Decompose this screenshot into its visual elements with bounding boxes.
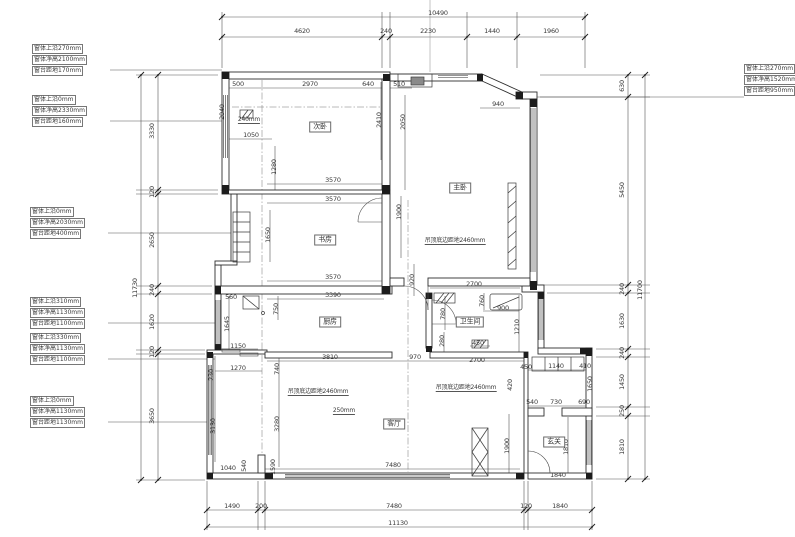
dim-label: 1270: [230, 365, 246, 372]
dim-label: 450: [520, 364, 532, 371]
dim-label: 500: [232, 81, 244, 88]
dim-label: 1900: [504, 438, 511, 454]
dim-label: 510: [393, 81, 405, 88]
dim-label: 240: [619, 283, 626, 295]
dim-label: 3650: [149, 408, 156, 424]
window-note-line: 窗体净高1520mm: [744, 75, 795, 85]
dim-label: 1630: [619, 313, 626, 329]
dim-label: 1440: [484, 28, 500, 35]
dim-label: 7480: [386, 503, 402, 510]
dim-label: 1050: [243, 132, 259, 139]
dim-label: 1840: [550, 472, 566, 479]
room-label: 书房: [314, 235, 336, 246]
room-label: 次卧: [309, 122, 331, 133]
window-note-line: 窗台距地160mm: [32, 117, 83, 127]
dim-label: 730: [550, 399, 562, 406]
window-note-line: 窗台距地950mm: [744, 86, 795, 96]
room-label: 客厅: [383, 419, 405, 430]
window-note-group: 窗体上沿310mm窗体净高1130mm窗台距地1100mm: [30, 297, 85, 330]
window-note-line: 窗体上沿0mm: [32, 95, 76, 105]
dim-label: 740: [274, 363, 281, 375]
dim-label: 1040: [220, 465, 236, 472]
window-note-group: 窗体上沿0mm窗体净高1130mm窗台距地1130mm: [30, 396, 85, 429]
dim-label: 3570: [325, 274, 341, 281]
dim-label: 240: [619, 347, 626, 359]
window-note-group: 窗体上沿330mm窗体净高1130mm窗台距地1100mm: [30, 333, 85, 366]
dim-label: 4620: [294, 28, 310, 35]
dim-label: 410: [579, 363, 591, 370]
window-note-line: 窗体上沿270mm: [744, 64, 795, 74]
dim-label: 970: [409, 354, 421, 361]
room-label: 玄关: [543, 437, 565, 448]
dim-label: 3390: [325, 292, 341, 299]
dim-label: 1620: [149, 314, 156, 330]
dim-label: 540: [241, 460, 248, 472]
dim-label: 3130: [210, 418, 217, 434]
dim-label: 750: [273, 303, 280, 315]
dim-label: 3330: [149, 123, 156, 139]
dim-label: 3570: [325, 177, 341, 184]
dim-label: 1150: [230, 343, 246, 350]
dim-label: 10490: [428, 10, 448, 17]
dim-label: 1810: [619, 439, 626, 455]
dim-label: 1210: [514, 319, 521, 335]
ceiling-note: 吊顶底边距地2460mm: [436, 385, 497, 392]
window-note-line: 窗体净高1130mm: [30, 407, 85, 417]
dim-label: 1450: [619, 374, 626, 390]
dim-label: 560: [225, 294, 237, 301]
dim-label: 940: [492, 101, 504, 108]
window-note-line: 窗台距地170mm: [32, 66, 83, 76]
dim-label: 1650: [587, 376, 594, 392]
dim-label: 2410: [376, 112, 383, 128]
dim-label: 2050: [400, 114, 407, 130]
window-note-line: 窗体净高2330mm: [32, 106, 87, 116]
dim-label: 120: [520, 503, 532, 510]
dim-label: 760: [479, 295, 486, 307]
room-label: 主卧: [449, 183, 471, 194]
window-note-group: 窗体上沿270mm窗体净高1520mm窗台距地950mm: [744, 64, 795, 97]
dim-label: 920: [409, 274, 416, 286]
window-note-line: 窗体上沿270mm: [32, 44, 83, 54]
dim-label: 11730: [132, 278, 139, 298]
dim-label: 1645: [224, 316, 231, 332]
dim-label: 11130: [388, 520, 408, 527]
dim-label: 630: [619, 80, 626, 92]
dim-label: 1590: [270, 459, 277, 475]
ceiling-note: 吊顶底边距地2460mm: [425, 238, 486, 245]
dim-label: 3570: [325, 196, 341, 203]
dim-label: 420: [507, 379, 514, 391]
stove: [243, 296, 265, 315]
window-note-group: 窗体上沿270mm窗体净高2100mm窗台距地170mm: [32, 44, 87, 77]
dim-label: 7480: [385, 462, 401, 469]
dimension-note: 250mm: [333, 408, 355, 415]
dim-label: 1650: [265, 227, 272, 243]
dim-label: 200: [255, 503, 267, 510]
dim-label: 5450: [619, 182, 626, 198]
dim-label: 240: [149, 284, 156, 296]
dim-label: 240: [380, 28, 392, 35]
window-note-line: 窗体上沿0mm: [30, 396, 74, 406]
dim-label: 640: [362, 81, 374, 88]
window-note-line: 窗台距地400mm: [30, 229, 81, 239]
dim-label: 3810: [322, 354, 338, 361]
dimension-ticks: [138, 14, 648, 530]
radiator: [508, 183, 516, 269]
dim-label: 1490: [224, 503, 240, 510]
dim-label: 2700: [469, 357, 485, 364]
dim-label: 1140: [548, 363, 564, 370]
dim-label: 1840: [552, 503, 568, 510]
dim-label: 1900: [396, 204, 403, 220]
window-note-line: 窗台距地1100mm: [30, 355, 85, 365]
dim-label: 11700: [637, 280, 644, 300]
dimension-note: 240mm: [238, 117, 260, 124]
window-note-line: 窗体净高2100mm: [32, 55, 87, 65]
dim-label: 450: [472, 340, 484, 347]
floor-plan-canvas: 1049046202402230144019601490200748012018…: [0, 0, 795, 537]
dim-label: 2650: [149, 232, 156, 248]
window-note-line: 窗体净高1130mm: [30, 308, 85, 318]
dim-label: 540: [526, 399, 538, 406]
room-label: 厨房: [319, 317, 341, 328]
dim-label: 1960: [543, 28, 559, 35]
washbasin: [434, 293, 455, 303]
dim-label: 2040: [219, 104, 226, 120]
room-label: 卫生间: [456, 317, 484, 328]
dim-label: 2230: [420, 28, 436, 35]
dim-label: 230: [208, 369, 215, 381]
window-note-line: 窗台距地1100mm: [30, 319, 85, 329]
dim-label: 2970: [302, 81, 318, 88]
dim-label: 900: [497, 305, 509, 312]
window-note-line: 窗体上沿0mm: [30, 207, 74, 217]
window-note-line: 窗台距地1130mm: [30, 418, 85, 428]
window-note-line: 窗体净高2030mm: [30, 218, 85, 228]
dim-label: 120: [149, 346, 156, 358]
window-note-line: 窗体上沿310mm: [30, 297, 81, 307]
dim-label: 1280: [271, 159, 278, 175]
dim-label: 3280: [274, 416, 281, 432]
dim-label: 2700: [466, 281, 482, 288]
dim-label: 780: [440, 308, 447, 320]
window-note-line: 窗体上沿330mm: [30, 333, 81, 343]
dim-label: 120: [149, 186, 156, 198]
window-note-group: 窗体上沿0mm窗体净高2330mm窗台距地160mm: [32, 95, 87, 128]
dim-label: 250: [619, 405, 626, 417]
window-note-line: 窗体净高1130mm: [30, 344, 85, 354]
dim-label: 280: [439, 335, 446, 347]
dim-label: 690: [578, 399, 590, 406]
ceiling-note: 吊顶底边距地2460mm: [288, 389, 349, 396]
window-note-group: 窗体上沿0mm窗体净高2030mm窗台距地400mm: [30, 207, 85, 240]
